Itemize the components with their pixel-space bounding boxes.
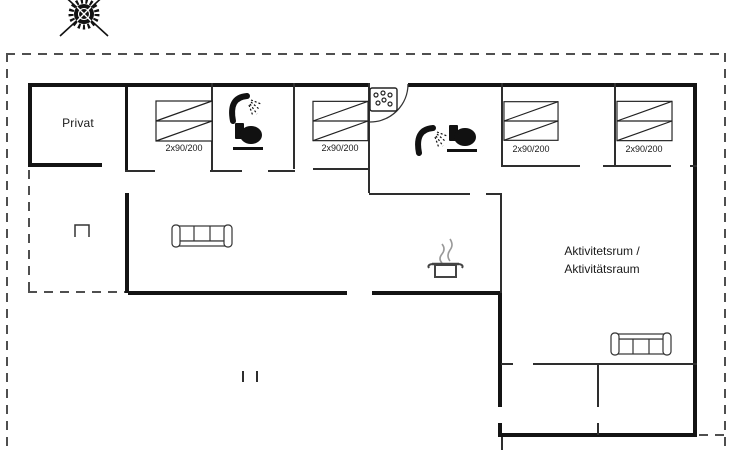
wall [28, 83, 32, 167]
toilet-icon [446, 124, 478, 154]
partition-wall [293, 83, 295, 169]
double-bed-icon [616, 100, 673, 142]
partition-wall [369, 193, 470, 195]
step-mark [242, 371, 244, 382]
partition-wall [501, 437, 503, 450]
washing-machine-icon [369, 87, 399, 113]
floor-plan: 2x90/200 2x90/200 2x90/200 2x90/200 [0, 0, 730, 450]
partition-wall [614, 165, 671, 167]
boundary-top [6, 53, 726, 55]
bed-size-label: 2x90/200 [154, 143, 214, 153]
wall [28, 83, 370, 87]
partition-wall [533, 363, 697, 365]
room-label-activity: Aktivitetsrum / Aktivitätsraum [520, 242, 684, 278]
terrace-boundary-west [28, 170, 30, 293]
terrace-boundary-south [28, 291, 128, 293]
room-label-activity-line2: Aktivitätsraum [520, 260, 684, 278]
partition-wall [603, 165, 614, 167]
partition-wall [501, 363, 513, 365]
double-bed-icon [155, 100, 213, 142]
partition-wall [313, 168, 369, 170]
wall [498, 293, 502, 407]
partition-wall [597, 363, 599, 407]
cooking-pot-icon [422, 234, 468, 280]
room-label-activity-line1: Aktivitetsrum / [520, 242, 684, 260]
wall [693, 83, 697, 437]
wall [128, 291, 347, 295]
partition-wall [486, 193, 500, 195]
step-mark [256, 371, 258, 382]
sofa-icon [171, 223, 233, 249]
wall [408, 83, 697, 87]
double-bed-icon [503, 100, 559, 142]
sofa-icon [609, 331, 673, 357]
double-bed-icon [312, 100, 369, 142]
wall [500, 433, 697, 437]
terrace-marker-icon [72, 222, 92, 238]
toilet-icon [232, 122, 264, 152]
shower-icon [414, 124, 448, 156]
bed-size-label: 2x90/200 [501, 144, 561, 154]
wall [28, 163, 102, 167]
room-label-privat: Privat [40, 116, 116, 130]
partition-wall [597, 423, 599, 435]
wall [125, 193, 129, 293]
shower-icon [228, 92, 262, 124]
partition-wall [268, 170, 295, 172]
bed-size-label: 2x90/200 [310, 143, 370, 153]
boundary-left [6, 53, 8, 450]
partition-wall [210, 170, 242, 172]
wall [372, 291, 502, 295]
boundary-connector [699, 434, 725, 436]
partition-wall [125, 170, 155, 172]
partition-wall [501, 165, 580, 167]
wall [125, 83, 128, 172]
bed-size-label: 2x90/200 [614, 144, 674, 154]
compass-rose-icon [56, 0, 112, 38]
boundary-right [724, 53, 726, 450]
partition-wall [500, 193, 502, 293]
wall [498, 423, 502, 437]
partition-wall [690, 165, 697, 167]
